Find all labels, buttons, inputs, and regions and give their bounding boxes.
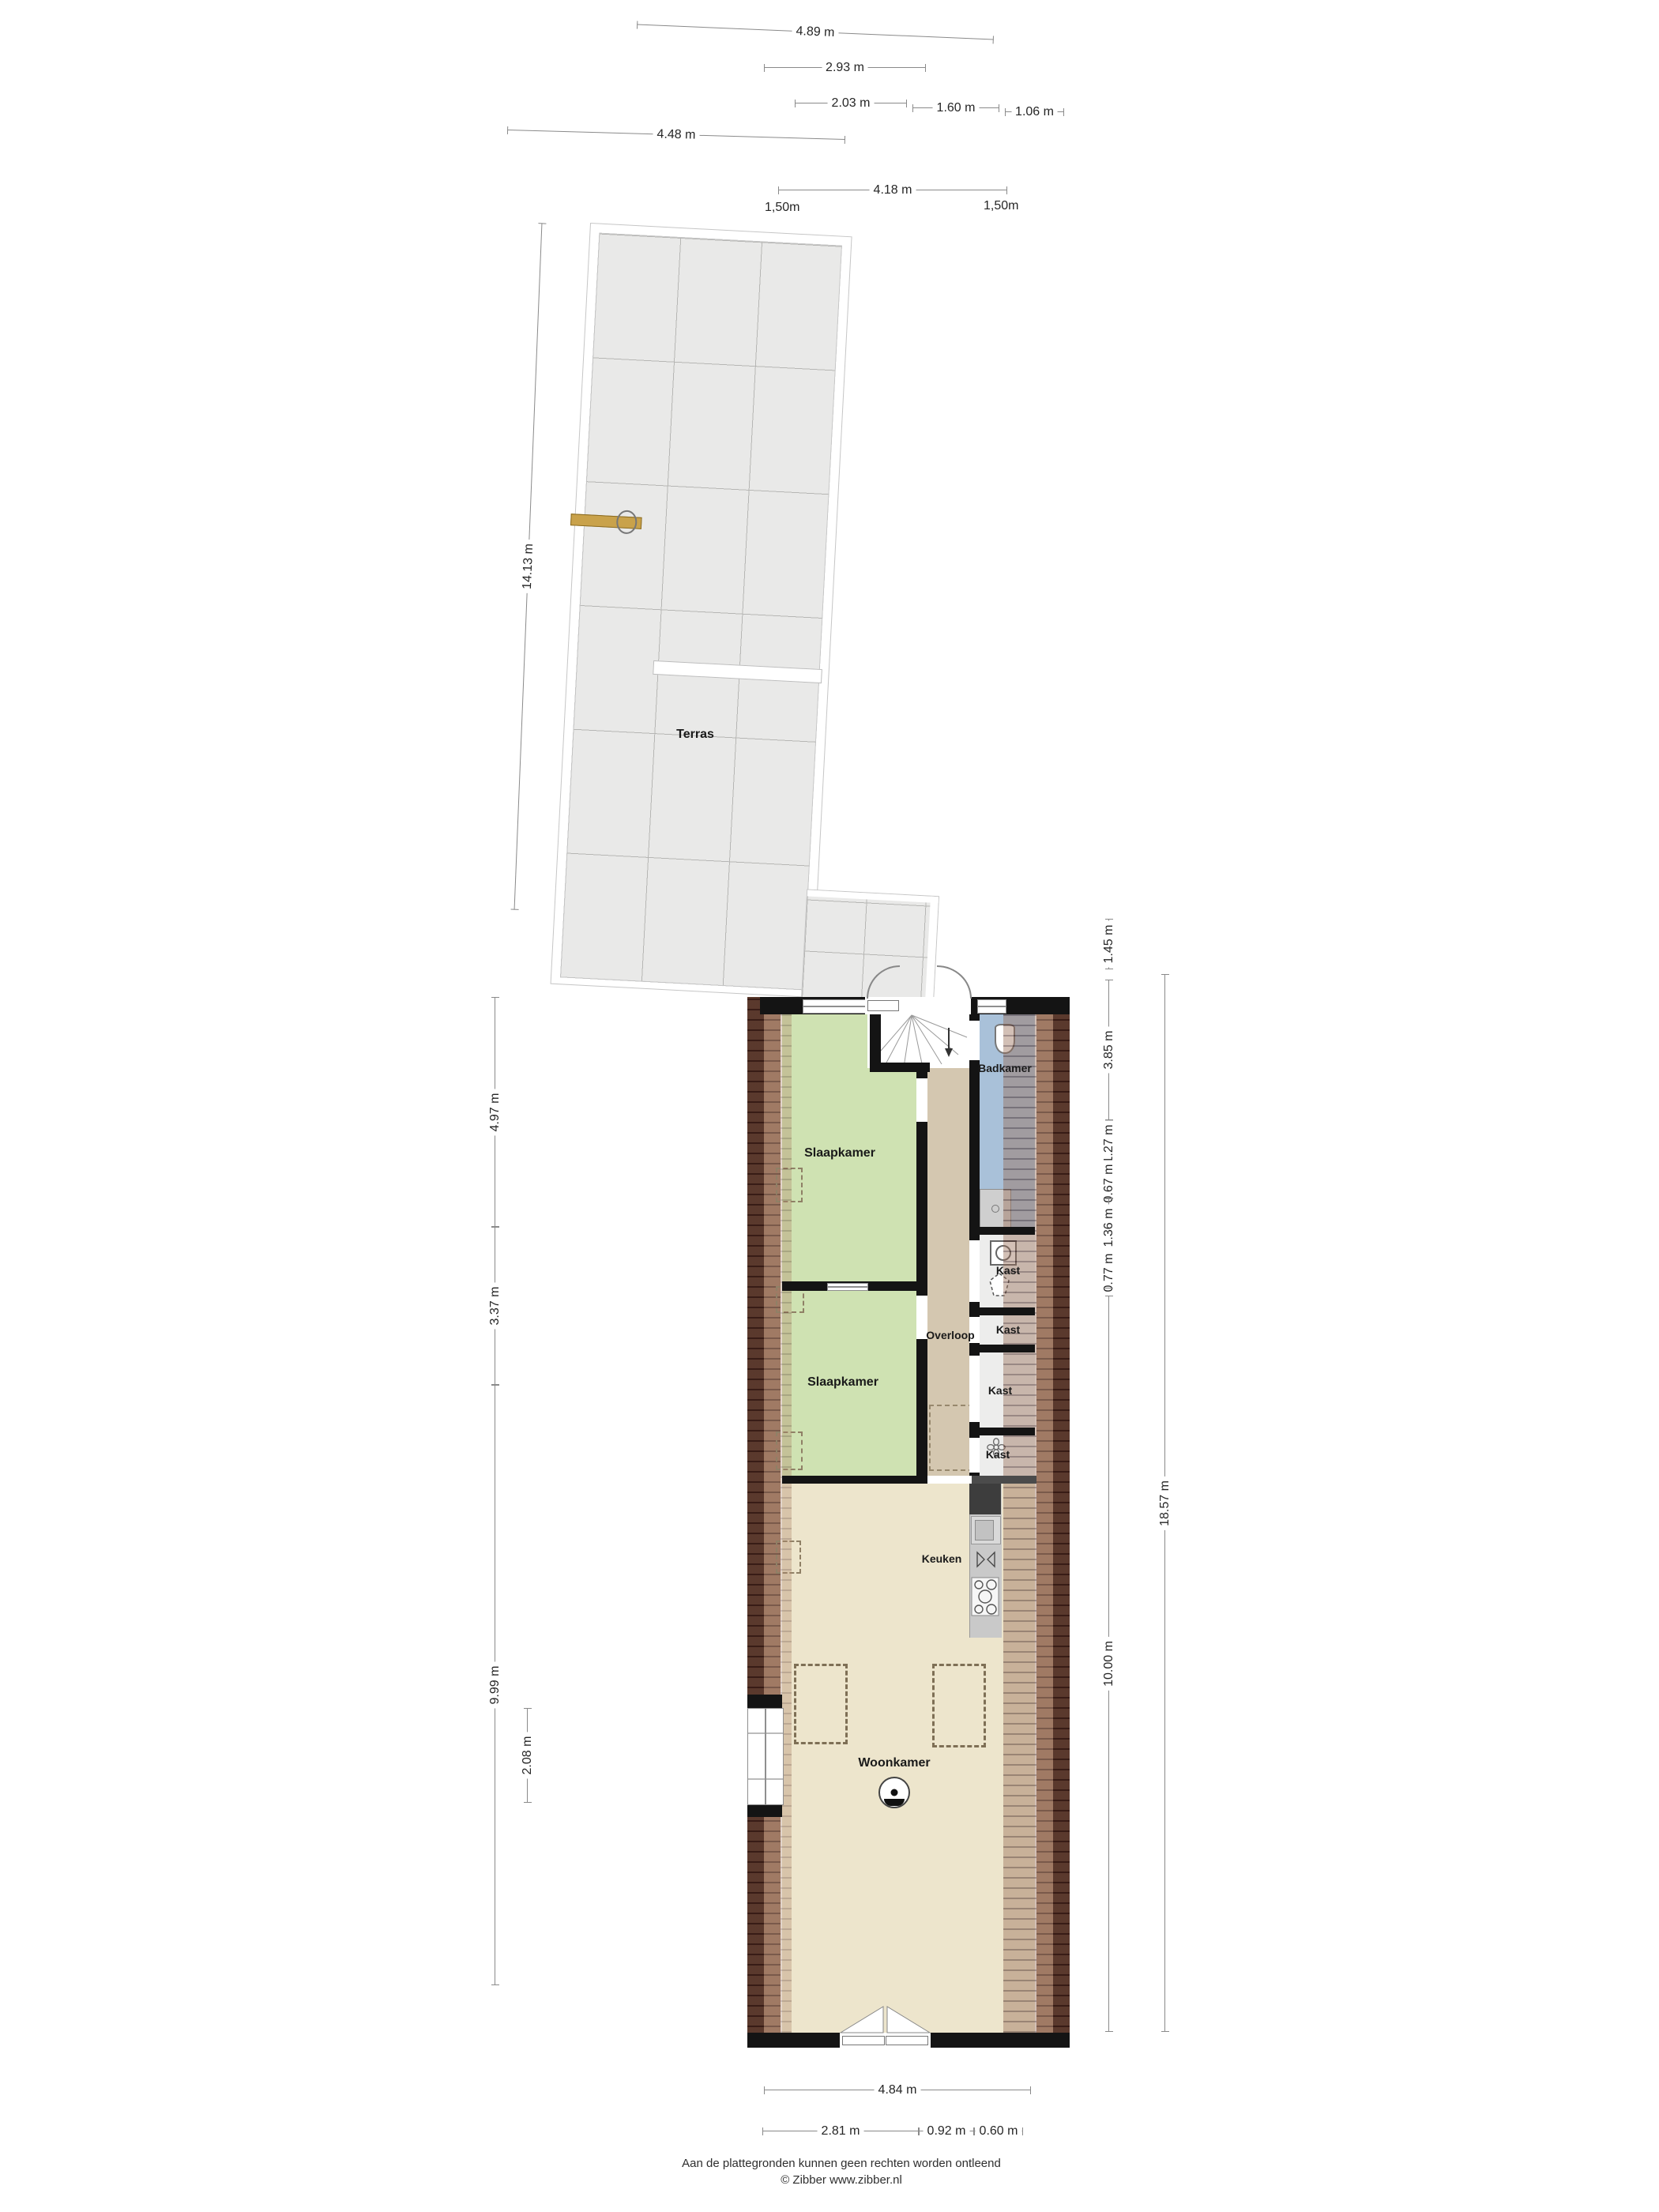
wall-closet-divider <box>980 1345 1035 1352</box>
footer-disclaimer: Aan de plattegronden kunnen geen rechten… <box>553 2155 1130 2172</box>
door-opening-kast-3 <box>969 1356 980 1422</box>
dimension-bottom-060: 0.60 m <box>974 2131 1023 2131</box>
dimension-bottom-484: 4.84 m <box>764 2090 1031 2090</box>
floorplan-canvas: Terras <box>0 0 1659 2212</box>
stairs-icon <box>867 1014 969 1068</box>
door-opening-badkamer <box>969 1021 980 1060</box>
door-opening-slaapkamer-1 <box>916 1078 927 1122</box>
dimension-top-489: 4.89 m <box>637 24 994 40</box>
terrace-area <box>551 224 852 997</box>
wall-closet-divider <box>980 1307 1035 1315</box>
brick-wall-right <box>1036 997 1070 2048</box>
dimension-right-145: 1.45 m <box>1108 919 1109 969</box>
footer-copyright: © Zibber www.zibber.nl <box>553 2172 1130 2188</box>
dimension-bottom-281: 2.81 m <box>762 2131 919 2131</box>
dimension-bottom-092: 0.92 m <box>919 2131 974 2131</box>
dimension-left-497: 4.97 m <box>495 997 495 1227</box>
room-label-slaapkamer-1: Slaapkamer <box>804 1146 875 1161</box>
kitchen-countertop <box>969 1484 1001 1514</box>
skylight-dashed <box>932 1664 986 1747</box>
terrace-tiles <box>560 233 842 991</box>
dimension-right-067: 0.67 m <box>1108 1168 1109 1198</box>
dimension-top-106: 1.06 m <box>1005 111 1064 112</box>
room-label-keuken: Keuken <box>922 1552 962 1565</box>
dimension-top-160: 1.60 m <box>912 107 999 108</box>
window-livingroom-left <box>747 1708 784 1805</box>
room-label-kast-2: Kast <box>996 1323 1020 1336</box>
roof-overhang-right <box>1003 1014 1036 2033</box>
dimension-offset-right: 1,50m <box>984 199 1018 213</box>
room-label-overloop: Overloop <box>926 1329 974 1341</box>
dimension-top-418: 4.18 m <box>778 190 1007 190</box>
dimension-offset-left: 1,50m <box>765 201 799 215</box>
wood-stove-icon <box>878 1777 910 1808</box>
window-top-2 <box>977 999 1006 1014</box>
skylight-dashed <box>794 1664 848 1744</box>
door-leaf <box>886 2036 928 2045</box>
wall-window-cap <box>747 1804 782 1817</box>
cooktop-icon <box>971 1577 999 1616</box>
dimension-left-999: 9.99 m <box>495 1385 495 1985</box>
window-bedroom-divider <box>827 1283 868 1291</box>
door-swing-arc <box>937 965 972 999</box>
dimension-right-385: 3.85 m <box>1108 980 1109 1120</box>
dishwasher-icon <box>975 1550 997 1569</box>
loft-hatch-dashed <box>929 1405 973 1471</box>
dimension-right-1000: 10.00 m <box>1108 1296 1109 2032</box>
dimension-right-136: 1.36 m <box>1108 1198 1109 1257</box>
sink-icon <box>971 1516 1001 1544</box>
door-swing <box>840 2005 931 2033</box>
wall-corridor <box>916 1068 927 1476</box>
wall-kitchen-top <box>972 1476 1036 1484</box>
room-label-woonkamer: Woonkamer <box>858 1756 930 1770</box>
window-top-1 <box>803 999 867 1014</box>
wall-livingroom-top <box>782 1476 927 1484</box>
stairs <box>867 1014 969 1068</box>
dimension-right-077: 0.77 m <box>1108 1257 1109 1288</box>
room-label-terras: Terras <box>676 728 714 742</box>
dimension-right-1857: 18.57 m <box>1164 974 1165 2032</box>
door-opening-kast-1 <box>969 1240 980 1302</box>
dimension-left-1413: 14.13 m <box>514 223 543 909</box>
wall-window-cap <box>747 1695 782 1708</box>
dimension-top-203: 2.03 m <box>795 103 907 103</box>
room-label-slaapkamer-2: Slaapkamer <box>807 1375 878 1390</box>
wall-stairs-left <box>870 1014 881 1067</box>
door-leaf <box>867 1000 899 1011</box>
room-label-kast-3: Kast <box>988 1384 1012 1397</box>
dimension-top-293: 2.93 m <box>764 67 926 68</box>
footer: Aan de plattegronden kunnen geen rechten… <box>553 2155 1130 2188</box>
wall-closet-divider <box>980 1227 1035 1235</box>
door-leaf <box>842 2036 885 2045</box>
room-label-kast-1: Kast <box>996 1264 1020 1277</box>
brick-wall-left <box>747 997 781 2048</box>
wall-closet-divider <box>980 1428 1035 1435</box>
dimension-left-337: 3.37 m <box>495 1227 495 1385</box>
door-opening-kast-4 <box>969 1438 980 1473</box>
door-opening-hall <box>935 997 971 1014</box>
dimension-left-208: 2.08 m <box>527 1708 528 1803</box>
room-label-kast-4: Kast <box>986 1448 1010 1461</box>
dimension-top-448: 4.48 m <box>507 130 845 140</box>
room-label-badkamer: Badkamer <box>978 1062 1032 1074</box>
roof-overhang-left <box>781 1014 792 2033</box>
